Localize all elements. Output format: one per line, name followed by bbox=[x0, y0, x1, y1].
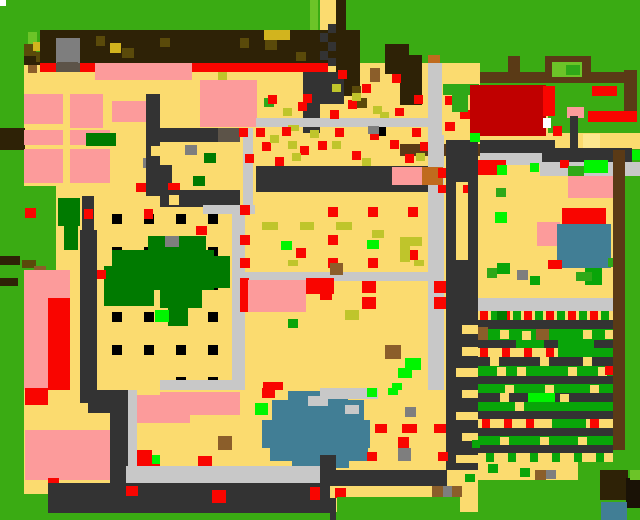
game-map[interactable] bbox=[0, 0, 640, 520]
screenshot-root bbox=[0, 0, 640, 520]
